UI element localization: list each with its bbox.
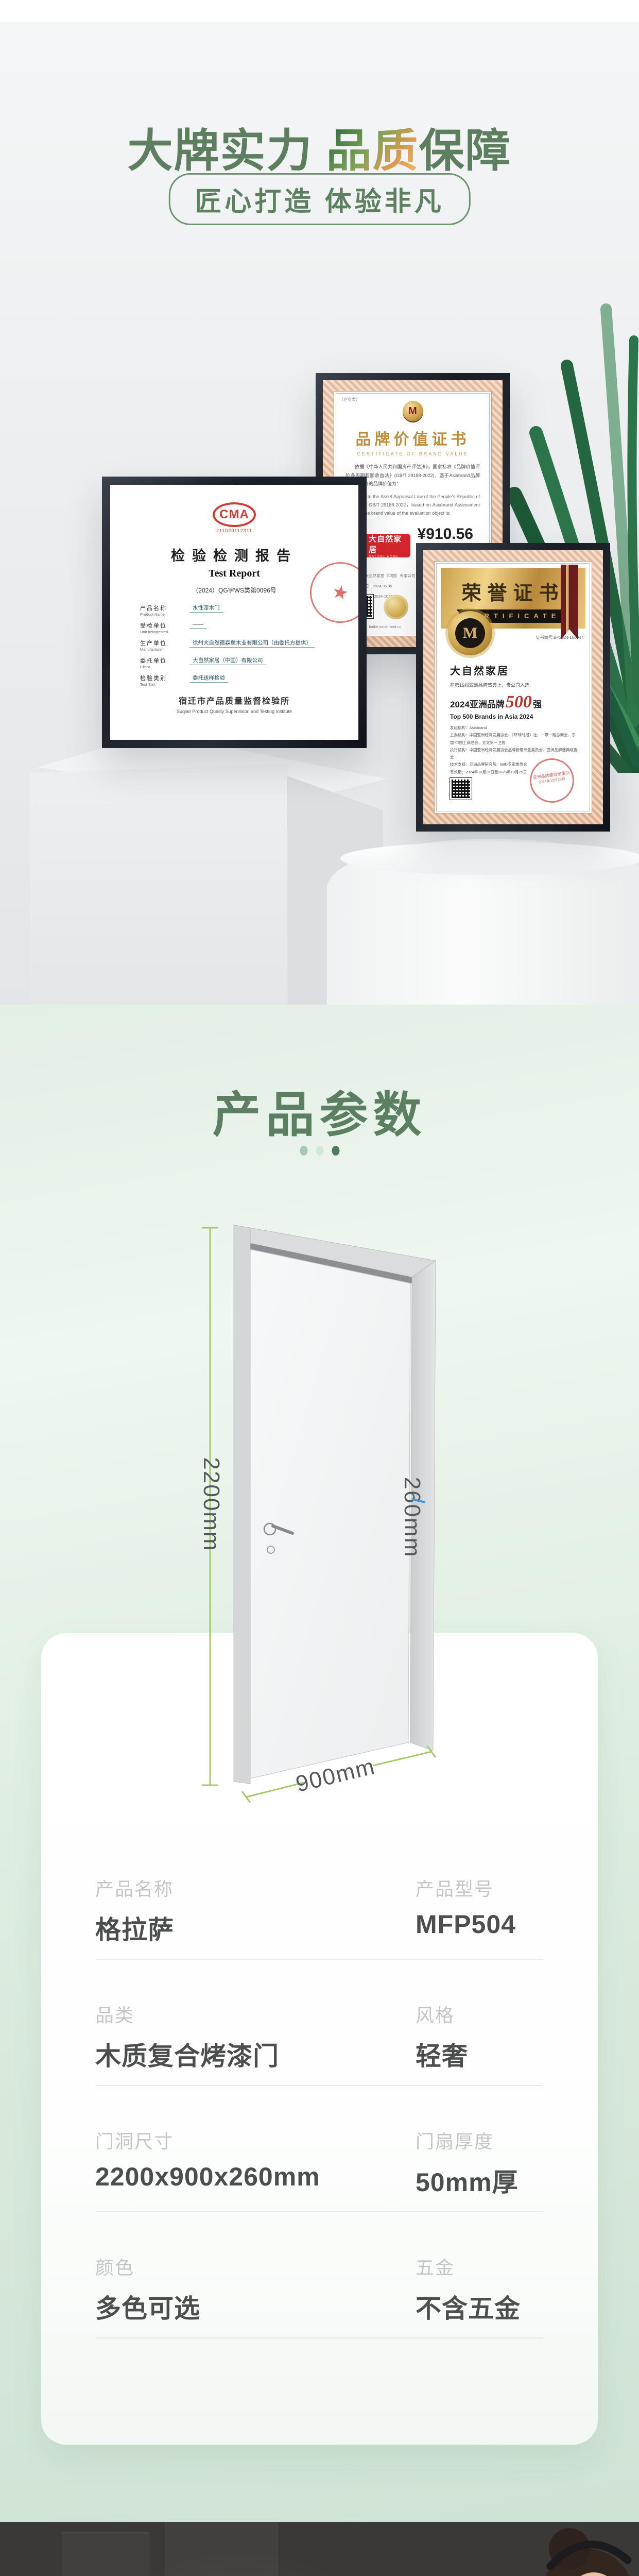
award-prefix: 2024亚洲品牌	[450, 700, 505, 709]
hero-subtitle-badge: 匠心打造 体验非凡	[168, 173, 470, 225]
hero-title-accent: 品质	[326, 125, 419, 176]
medal-icon: M	[448, 611, 492, 655]
field-label-en: Product Name	[140, 612, 189, 617]
award-suffix: 强	[533, 700, 542, 709]
spec-label: 颜色	[95, 2253, 200, 2280]
spec-label: 品类	[95, 2001, 279, 2027]
left-pedestal-front	[30, 764, 288, 1005]
field-label-en: Test Sort	[140, 682, 189, 687]
honor-cert-ornate-border: 荣誉证书 CERTIFICATE M 证书编号:BP2024-100047 大自…	[423, 550, 603, 824]
divider	[95, 2337, 543, 2338]
field-label-en: Unit beingtested	[140, 630, 189, 634]
dot-icon	[300, 1146, 307, 1156]
field-label: 生产单位	[140, 639, 189, 647]
nature-home-logo-cn: 大自然家居	[369, 533, 406, 555]
spec-value: 多色可选	[95, 2288, 200, 2325]
field-label-en: Manufacturer	[140, 647, 189, 652]
spec-value: 木质复合烤漆门	[95, 2036, 279, 2073]
honor-award-en: Top 500 Brands in Asia 2024	[450, 713, 580, 720]
qr-code-icon	[450, 778, 472, 800]
nature-home-logo-en: NATURE HOME	[369, 555, 406, 558]
field-value: 水性漆木门	[189, 604, 223, 613]
field-label: 产品名称	[140, 604, 189, 612]
brand-cert-title: 品牌价值证书	[334, 427, 491, 449]
test-report-issuer: 宿迁市产品质量监督检验所	[110, 694, 358, 706]
field-label: 受检单位	[140, 621, 189, 630]
spec-label: 门洞尺寸	[95, 2127, 320, 2154]
field-value: 委托送样检验	[189, 674, 228, 683]
field-value: 徐州大自然德森堡木业有限公司（由委托方提供）	[189, 639, 315, 648]
params-section-title: 产品参数	[0, 1076, 639, 1146]
test-report-field-row: 受检单位Unit beingtested ——	[140, 621, 358, 634]
honor-award-line: 2024亚洲品牌500强	[450, 692, 580, 712]
ribbon-icon	[561, 565, 578, 640]
divider	[95, 2211, 543, 2212]
field-label: 检验类别	[140, 674, 189, 682]
product-detail-page: 大牌实力品质保障 匠心打造 体验非凡	[0, 0, 639, 2576]
test-report-field-row: 生产单位Manufacturer 徐州大自然德森堡木业有限公司（由委托方提供）	[140, 639, 358, 652]
org-line: 发起机构：Asiabrand	[450, 724, 580, 732]
field-value: 大自然家居（中国）有限公司	[189, 656, 266, 665]
gold-seal-icon	[384, 595, 408, 619]
spec-label: 产品型号	[416, 1874, 516, 1901]
dot-icon	[332, 1146, 339, 1156]
spec-value: 格拉萨	[95, 1909, 174, 1946]
field-value: ——	[189, 621, 206, 629]
test-report-certificate: CMA 211020112311 检验检测报告 Test Report （202…	[102, 477, 367, 748]
hero-title: 大牌实力品质保障	[0, 114, 639, 180]
spec-value: MFP504	[416, 1909, 516, 1939]
spec-value: 轻奢	[416, 2036, 468, 2073]
spec-value: 50mm厚	[416, 2162, 519, 2199]
divider	[95, 1959, 543, 1960]
brand-cert-category-note: （企业类）	[339, 397, 360, 402]
honor-certificate: 荣誉证书 CERTIFICATE M 证书编号:BP2024-100047 大自…	[416, 543, 610, 832]
field-label-en: Client	[140, 665, 189, 669]
test-report-field-row: 检验类别Test Sort 委托送样检验	[140, 674, 358, 687]
background-panel	[62, 2532, 149, 2576]
dot-icon	[316, 1146, 323, 1156]
hero-title-left: 大牌实力	[127, 125, 313, 176]
hero-section: 大牌实力品质保障 匠心打造 体验非凡	[0, 0, 639, 1005]
divider	[95, 2085, 543, 2086]
spec-label: 门扇厚度	[416, 2127, 519, 2154]
test-report-title: 检验检测报告	[110, 545, 358, 565]
honor-line1: 在第19届亚洲品牌盛典上，贵公司入选	[450, 682, 580, 688]
spec-label: 产品名称	[95, 1874, 174, 1901]
field-label: 委托单位	[140, 656, 189, 665]
spec-label: 风格	[416, 2001, 468, 2027]
top-white-bar	[0, 0, 639, 22]
org-line: 执行机构：中国亚洲经济发展协会品牌管理专业委员会、亚洲品牌盛典组委会	[450, 747, 580, 761]
customer-service-agent-image	[433, 2522, 639, 2576]
spec-value: 2200x900x260mm	[95, 2162, 320, 2192]
award-number: 500	[506, 692, 532, 711]
hero-title-right: 保障	[419, 125, 512, 176]
brand-cert-title-en: CERTIFICATE OF BRAND VALUE	[334, 451, 491, 456]
cma-logo-icon: CMA	[213, 502, 256, 527]
medal-letter: M	[455, 618, 485, 648]
cylinder-pedestal	[327, 839, 639, 1005]
test-report-field-row: 委托单位Client 大自然家居（中国）有限公司	[140, 656, 358, 669]
title-dots-decoration	[300, 1146, 339, 1156]
cma-number: 211020112311	[110, 528, 358, 533]
service-section: 金保姆服务 全国1000+实体门店支持 咨询下单 › 上门量尺	[0, 2522, 639, 2576]
org-line: 主办机构：中国亚洲经济发展协会、《环球时报》社、一带一路总商会、东盟-中国工商总…	[450, 732, 580, 747]
spec-value: 不含五金	[416, 2288, 521, 2325]
spec-label: 五金	[416, 2253, 521, 2280]
background-panel	[165, 2522, 278, 2576]
test-report-issuer-en: Suqian Product Quality Supervision and T…	[110, 709, 358, 714]
honor-brand: 大自然家居	[450, 663, 580, 677]
spec-card: 产品名称 格拉萨 产品型号 MFP504 品类 木质复合烤漆门 风格 轻奢 门洞…	[41, 1633, 598, 2445]
medal-icon: M	[403, 401, 423, 421]
